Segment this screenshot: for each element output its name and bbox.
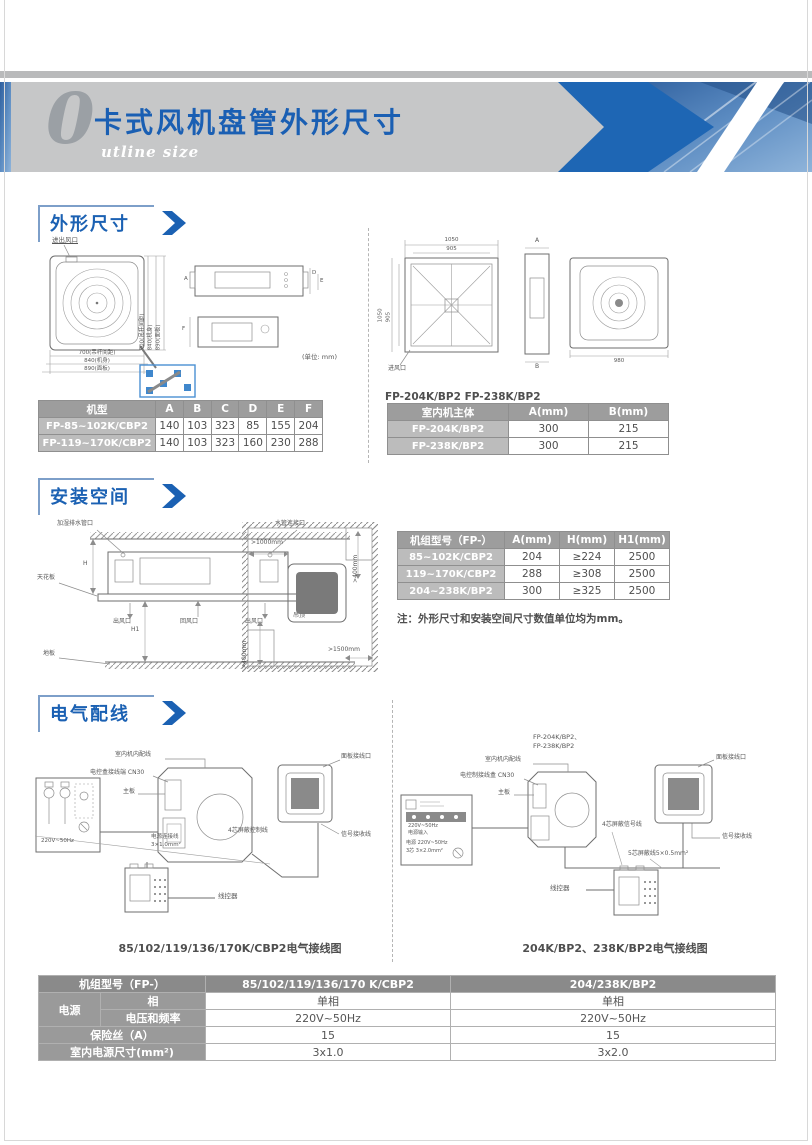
banner-left-photo-sliver [0, 82, 11, 172]
controller-label: 线控器 [218, 893, 238, 900]
cell: 140 [156, 435, 184, 452]
model-cell: FP-85~102K/CBP2 [39, 418, 156, 435]
signal-label: 信号接收线 [341, 832, 371, 839]
cell: 160 [239, 435, 267, 452]
cell: ≥224 [560, 549, 615, 566]
dim-panel-h: 890(面板) [42, 366, 152, 372]
dim-letter-e: E [320, 278, 323, 284]
page-subtitle: utline size [101, 143, 199, 161]
model-line2-label: FP-238K/BP2 [533, 743, 574, 750]
drain-port-label: 加湿排水管口 [57, 521, 93, 528]
col-header: H(mm) [560, 532, 615, 549]
ceiling-label: 天花板 [37, 575, 55, 582]
table-row: 保险丝（A） 15 15 [39, 1027, 776, 1044]
table-row: 119~170K/CBP2 288 ≥308 2500 [398, 566, 670, 583]
row-label: 相 [101, 993, 206, 1010]
wiring-diagram-left: 室内机内配线 电控盒接线端 CN30 主板 220V~50Hz 电源连接线 3×… [35, 732, 390, 937]
section1-divider [368, 228, 369, 463]
cell: 215 [589, 421, 669, 438]
power-cable-label: 电源连接线 [151, 834, 179, 840]
model-cell: FP-238K/BP2 [388, 438, 509, 455]
cell: 220V~50Hz [451, 1010, 776, 1027]
dim-h-label: H [83, 561, 88, 568]
cell: ≥308 [560, 566, 615, 583]
cell: 2500 [615, 549, 670, 566]
cell: 103 [183, 435, 211, 452]
clearance-left-label: >400mm [242, 641, 249, 669]
panel-port-label: 面板接线口 [716, 755, 746, 762]
shield5-label: 5芯屏蔽线5×0.5mm² [628, 851, 688, 858]
cell: 单相 [451, 993, 776, 1010]
table-row: FP-204K/BP2 300 215 [388, 421, 669, 438]
cell: 单相 [206, 993, 451, 1010]
outline-drawing-left-art [40, 232, 365, 402]
powerbox-line4: 3芯 3×2.0mm² [406, 849, 443, 855]
dim-letter-b2: B [525, 364, 549, 371]
dimensions-note: 注：外形尺寸和安装空间尺寸数值单位均为mm。 [397, 611, 629, 626]
shield-cable-label: 4芯屏蔽控制线 [228, 828, 268, 835]
wiring-left-caption: 85/102/119/136/170K/CBP2电气接线图 [75, 940, 385, 956]
table-row: 电压和频率 220V~50Hz 220V~50Hz [39, 1010, 776, 1027]
cell: 220V~50Hz [206, 1010, 451, 1027]
cell: 155 [267, 418, 295, 435]
panel-port-label: 面板接线口 [341, 754, 371, 761]
unit-note: (单位: mm) [302, 354, 337, 361]
table-header-row: 室内机主体 A(mm) B(mm) [388, 404, 669, 421]
section-install-title: 安装空间 [38, 478, 154, 515]
mainboard-label: 主板 [498, 790, 510, 797]
col-header: 机组型号（FP-） [39, 976, 206, 993]
shield4-label: 4芯屏蔽信号线 [602, 822, 642, 829]
cell: 3x1.0 [206, 1044, 451, 1061]
cell: 288 [505, 566, 560, 583]
electrical-spec-table: 机组型号（FP-） 85/102/119/136/170 K/CBP2 204/… [38, 975, 776, 1061]
col-header: 204/238K/BP2 [451, 976, 776, 993]
internal-wiring-label: 室内机内配线 [115, 752, 151, 759]
col-header: 机组型号（FP-） [398, 532, 505, 549]
model-cell: 85~102K/CBP2 [398, 549, 505, 566]
power-cable-spec-label: 3×1.0mm² [151, 842, 181, 848]
powerbox-line2: 电源输入 [408, 831, 428, 837]
install-table: 机组型号（FP-） A(mm) H(mm) H1(mm) 85~102K/CBP… [397, 531, 670, 600]
cn30-label: 电控盒接线端 CN30 [90, 770, 144, 777]
section-arrow-icon [162, 483, 188, 509]
dim-905-top: 905 [413, 246, 490, 252]
col-header: E [267, 401, 295, 418]
inlet-label2: 进风口 [388, 366, 406, 373]
floor-label: 地板 [43, 651, 55, 658]
models-caption: FP-204K/BP2 FP-238K/BP2 [385, 391, 541, 403]
clearance-top-label: >1000mm [251, 540, 283, 547]
cell: 204 [505, 549, 560, 566]
table-row: 85~102K/CBP2 204 ≥224 2500 [398, 549, 670, 566]
col-header: H1(mm) [615, 532, 670, 549]
col-header: C [211, 401, 239, 418]
model-cell: 119~170K/CBP2 [398, 566, 505, 583]
col-header: 机型 [39, 401, 156, 418]
col-header: B [183, 401, 211, 418]
model-cell: FP-204K/BP2 [388, 421, 509, 438]
model-cell: 204~238K/BP2 [398, 583, 505, 600]
outlet-left-label: 出风口 [113, 619, 131, 626]
dim-letter-f: F [182, 326, 185, 332]
dim-1050-left: 1050 [378, 308, 384, 322]
table-row: 电源 相 单相 单相 [39, 993, 776, 1010]
cell: 15 [451, 1027, 776, 1044]
internal-wiring-label: 室内机内配线 [485, 757, 521, 764]
cell: 140 [156, 418, 184, 435]
outline-dim-table: 机型 A B C D E F FP-85~102K/CBP2 140 103 3… [38, 400, 323, 452]
table-row: 室内电源尺寸(mm²) 3x1.0 3x2.0 [39, 1044, 776, 1061]
dim-body-v: 840(机身) [148, 325, 154, 351]
section-wiring-title: 电气配线 [38, 695, 154, 732]
cell: 103 [183, 418, 211, 435]
cell: 3x2.0 [451, 1044, 776, 1061]
dim-letter-a: A [184, 276, 188, 282]
top-divider-bar [0, 71, 812, 78]
page-title: 卡式风机盘管外形尺寸 [94, 101, 404, 141]
dim-905-left: 905 [386, 312, 392, 323]
install-top-diagram: >1000mm >400mm >400mm >1500mm [240, 518, 382, 678]
model-line1-label: FP-204K/BP2、 [533, 734, 581, 741]
dim-letter-d: D [312, 270, 316, 276]
wiring-right-caption: 204K/BP2、238K/BP2电气接线图 [470, 940, 760, 956]
row-label: 电压和频率 [101, 1010, 206, 1027]
table-row: FP-85~102K/CBP2 140 103 323 85 155 204 [39, 418, 323, 435]
power-rating-label: 220V~50Hz [41, 838, 74, 844]
mainboard-label: 主板 [123, 789, 135, 796]
cell: 230 [267, 435, 295, 452]
cell: 288 [295, 435, 323, 452]
col-header: F [295, 401, 323, 418]
cell: 300 [509, 421, 589, 438]
dim-panel-v: 890(面板) [156, 325, 162, 351]
dim-hanger-pitch-v: 700(吊杆间距) [140, 314, 146, 351]
cell: 323 [211, 418, 239, 435]
cn30-label: 电控制接线盒 CN30 [460, 773, 514, 780]
cell: 2500 [615, 566, 670, 583]
col-header: A(mm) [505, 532, 560, 549]
cell: 15 [206, 1027, 451, 1044]
model-cell: FP-119~170K/CBP2 [39, 435, 156, 452]
dim-body-h: 840(机身) [46, 358, 148, 364]
outline-drawing-left: 进出风口 700(吊杆间距) 840(机身) 890(面板) 700(吊杆间距)… [40, 232, 365, 402]
cell: 300 [509, 438, 589, 455]
signal-label: 信号接收线 [722, 834, 752, 841]
banner-big-letter: 0 [46, 84, 95, 154]
cell: 215 [589, 438, 669, 455]
table-header-row: 机组型号（FP-） A(mm) H(mm) H1(mm) [398, 532, 670, 549]
outline-drawing-right: 1050 905 1050 905 A B 980 进风口 [388, 238, 688, 388]
wiring-diagram-right: FP-204K/BP2、 FP-238K/BP2 室内机内配线 电控制接线盒 C… [400, 728, 805, 938]
dim-hanger-pitch-h: 700(吊杆间距) [50, 350, 144, 356]
col-header: D [239, 401, 267, 418]
cell: 2500 [615, 583, 670, 600]
manual-page: 0 卡式风机盘管外形尺寸 utline size 外形尺寸 [0, 0, 812, 1145]
powerbox-line3: 电源 220V~50Hz [406, 841, 448, 847]
dim-letter-a2: A [525, 238, 549, 245]
col-header: 室内机主体 [388, 404, 509, 421]
controller-label: 线控器 [550, 885, 570, 892]
outline-main-table: 室内机主体 A(mm) B(mm) FP-204K/BP2 300 215 FP… [387, 403, 669, 455]
table-row: FP-119~170K/CBP2 140 103 323 160 230 288 [39, 435, 323, 452]
col-header: A(mm) [509, 404, 589, 421]
cell: ≥325 [560, 583, 615, 600]
clearance-bottom-label: >1500mm [328, 647, 360, 654]
row-label: 室内电源尺寸(mm²) [39, 1044, 206, 1061]
col-header: B(mm) [589, 404, 669, 421]
dim-1050-top: 1050 [405, 237, 498, 243]
cell: 300 [505, 583, 560, 600]
section-arrow-icon [162, 700, 188, 726]
section-wiring-header: 电气配线 [38, 695, 188, 732]
col-header: 85/102/119/136/170 K/CBP2 [206, 976, 451, 993]
wiring-diagram-left-art [35, 732, 390, 937]
cell: 85 [239, 418, 267, 435]
col-header: A [156, 401, 184, 418]
cell: 323 [211, 435, 239, 452]
cell: 204 [295, 418, 323, 435]
table-header-row: 机型 A B C D E F [39, 401, 323, 418]
group-label: 电源 [39, 993, 101, 1027]
section3-divider [392, 700, 393, 962]
clearance-right-label: >400mm [353, 555, 360, 583]
powerbox-line1: 220V~50Hz [408, 824, 438, 830]
section-install-header: 安装空间 [38, 478, 188, 515]
inlet-outlet-label: 进出风口 [52, 237, 78, 244]
dim-h1-label: H1 [131, 627, 139, 634]
dim-980: 980 [570, 358, 668, 364]
table-row: FP-238K/BP2 300 215 [388, 438, 669, 455]
row-label: 保险丝（A） [39, 1027, 206, 1044]
table-header-row: 机组型号（FP-） 85/102/119/136/170 K/CBP2 204/… [39, 976, 776, 993]
return-label: 回风口 [180, 619, 198, 626]
table-row: 204~238K/BP2 300 ≥325 2500 [398, 583, 670, 600]
